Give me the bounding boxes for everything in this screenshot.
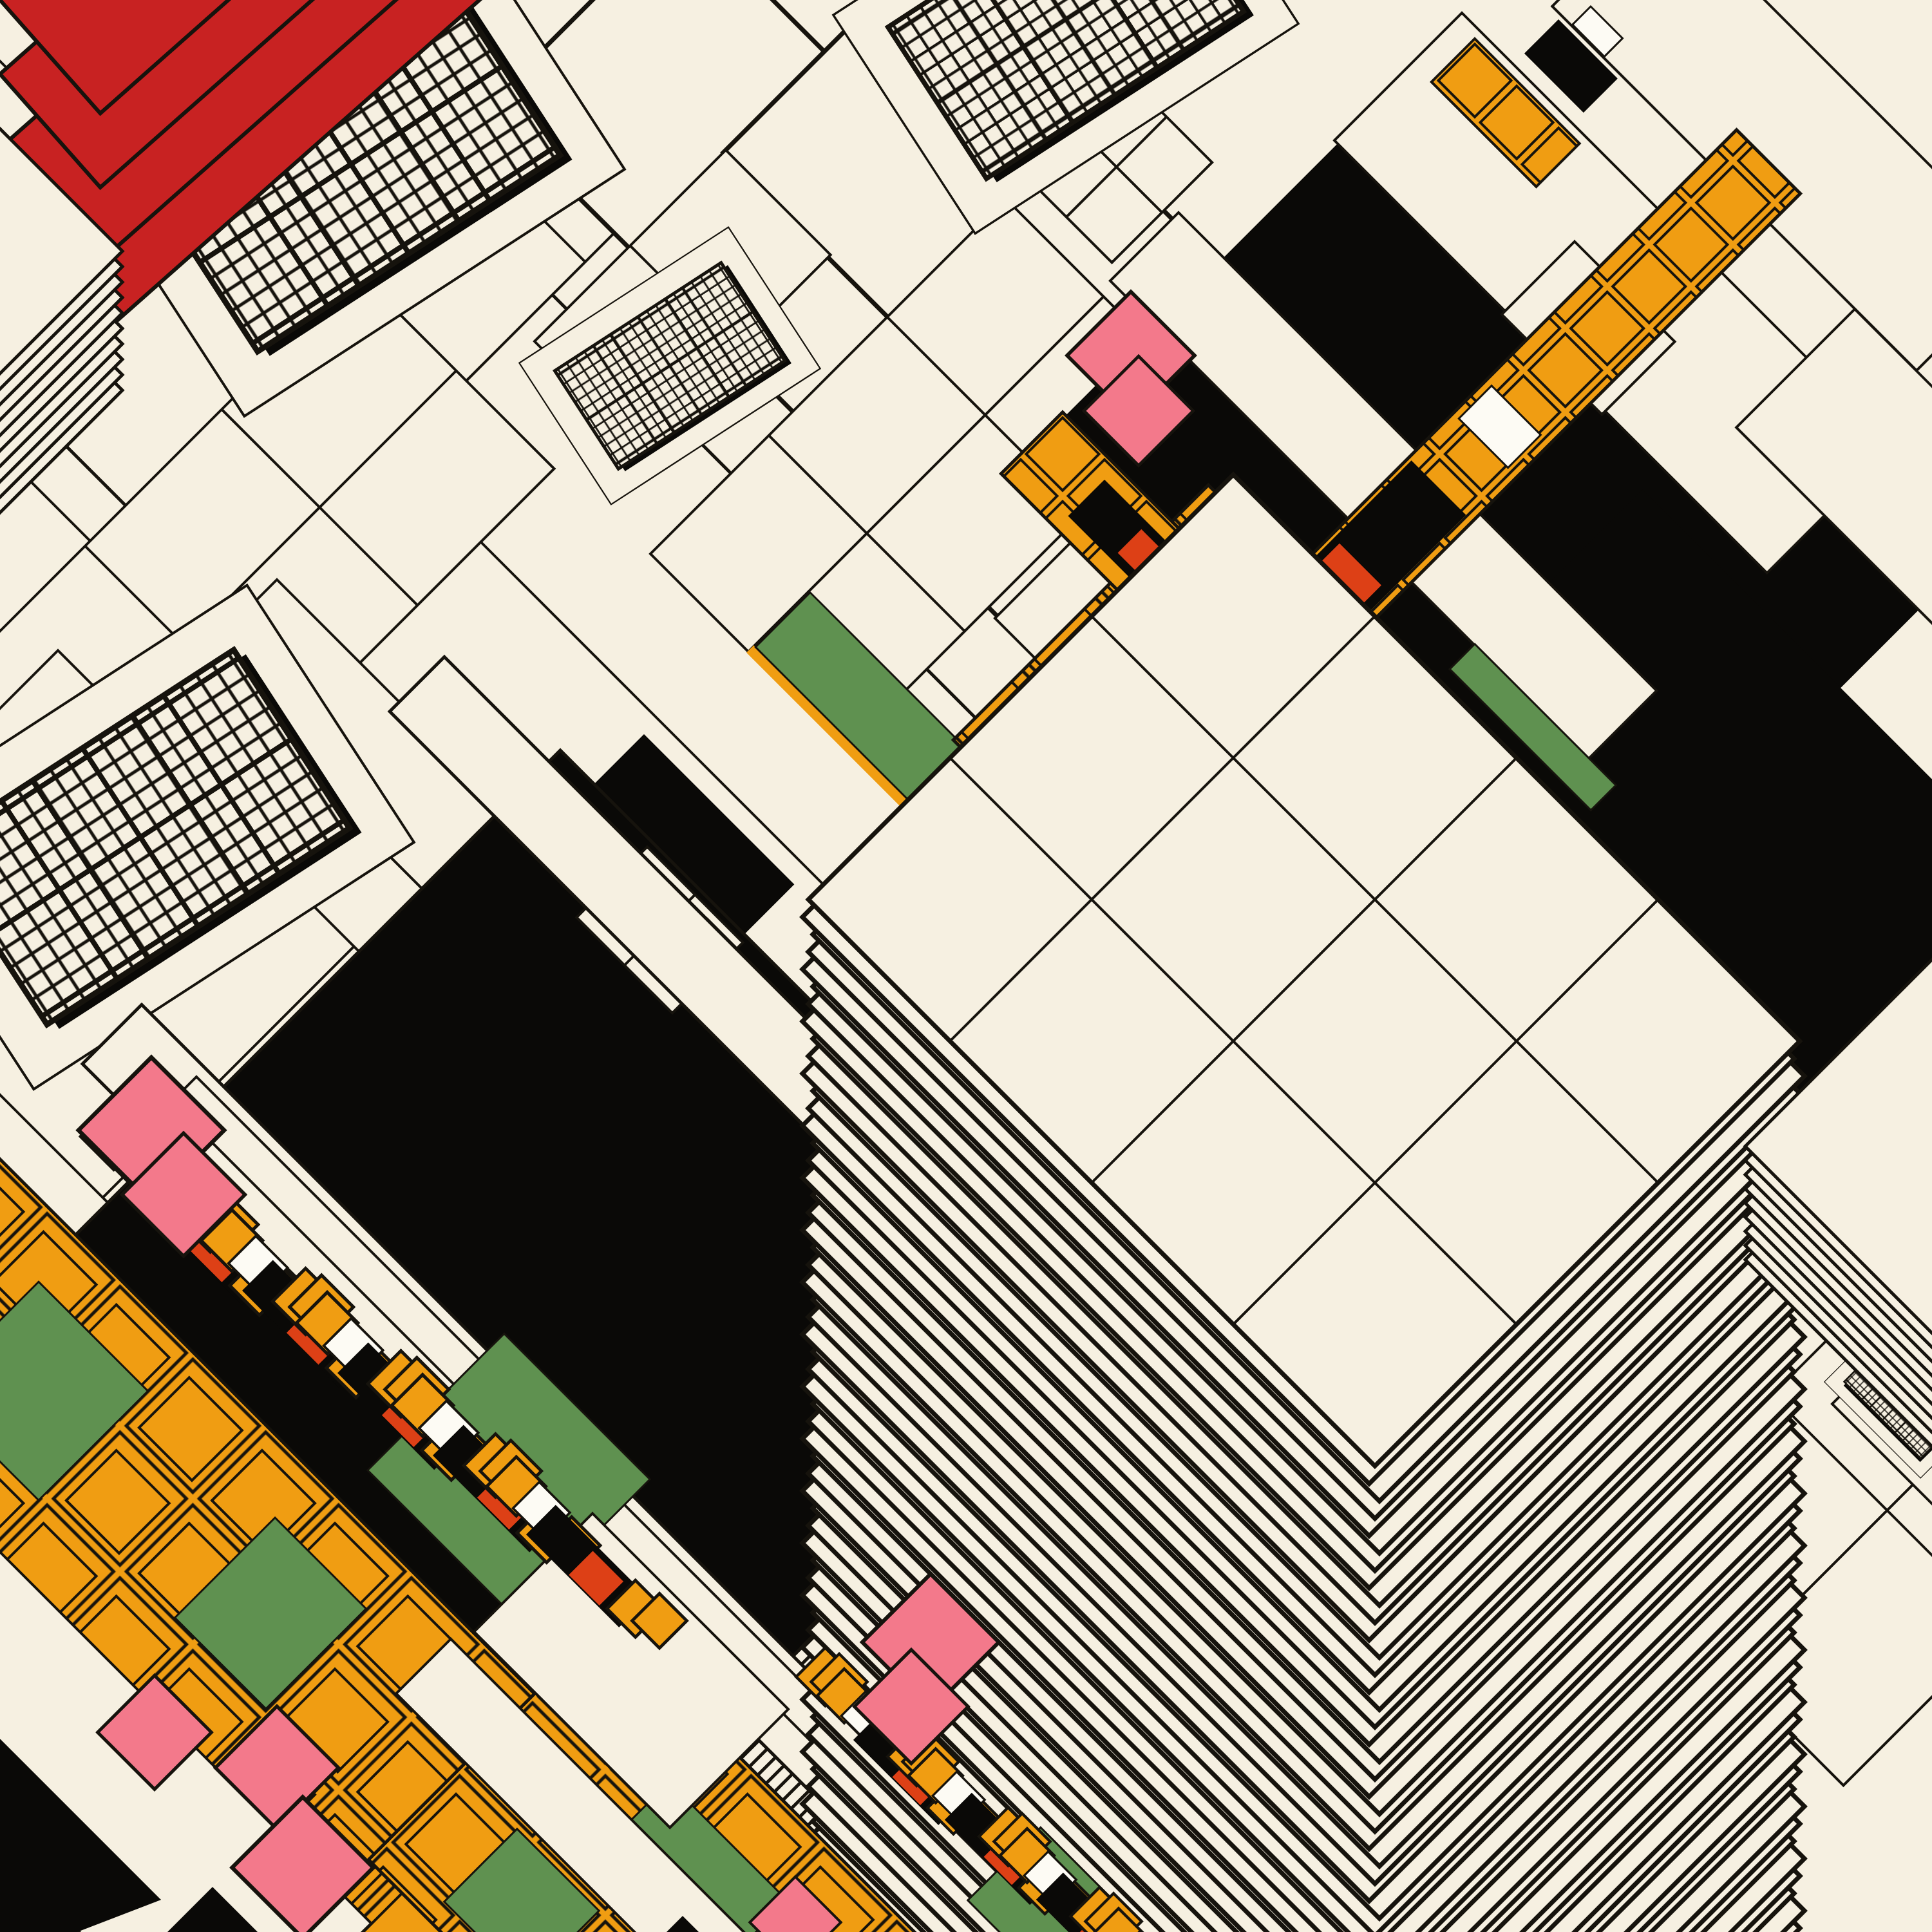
- generative-art-canvas: [0, 0, 1932, 1932]
